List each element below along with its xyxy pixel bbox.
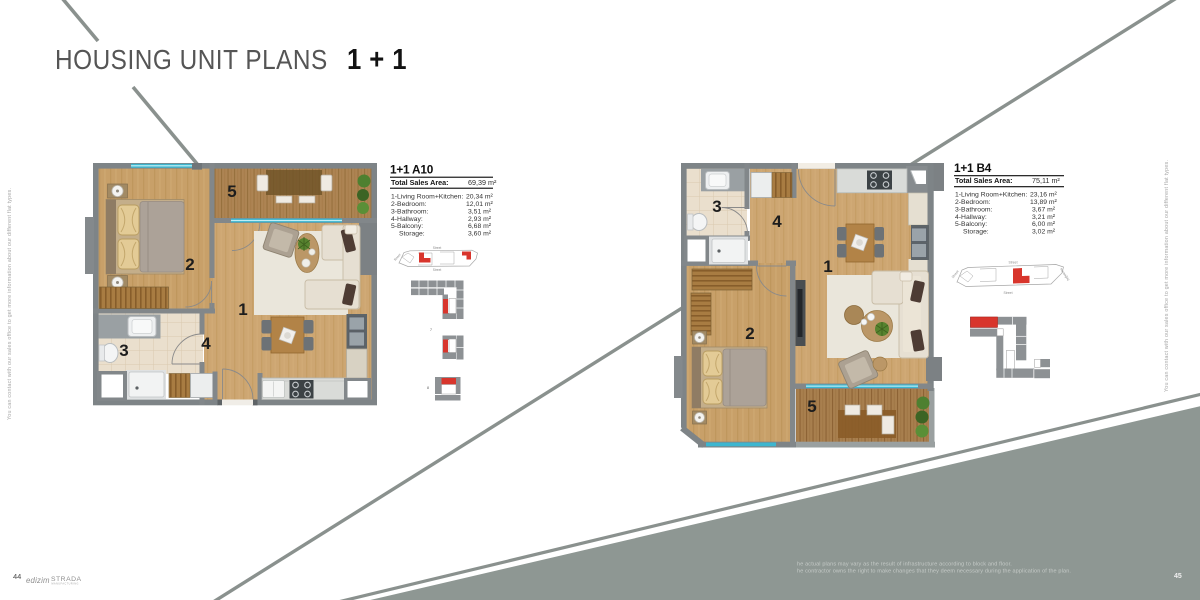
svg-text:23,16 m²: 23,16 m² <box>1030 192 1058 199</box>
svg-text:5: 5 <box>807 397 816 416</box>
svg-text:Street: Street <box>433 246 442 250</box>
svg-text:1+1 B4: 1+1 B4 <box>954 161 992 175</box>
svg-text:Storage:: Storage: <box>963 229 989 236</box>
svg-text:45: 45 <box>1174 573 1182 580</box>
svg-text:Storage:: Storage: <box>399 231 425 238</box>
svg-text:Total Sales Area:: Total Sales Area: <box>391 178 449 187</box>
svg-text:1: 1 <box>823 257 832 276</box>
svg-text:3,60 m²: 3,60 m² <box>468 231 492 238</box>
svg-text:3,21 m²: 3,21 m² <box>1032 214 1056 221</box>
svg-text:You can contact with our sales: You can contact with our sales office to… <box>7 188 13 420</box>
svg-text:1-Living Room+Kitchen:: 1-Living Room+Kitchen: <box>391 194 463 201</box>
svg-text:4-Hallway:: 4-Hallway: <box>955 214 987 221</box>
svg-text:1+1 A10: 1+1 A10 <box>390 163 434 177</box>
svg-text:3-Bathroom:: 3-Bathroom: <box>391 208 429 215</box>
svg-text:2: 2 <box>745 324 754 343</box>
svg-text:he actual plans may vary as th: he actual plans may vary as the result o… <box>797 562 1012 568</box>
svg-text:2-Bedroom:: 2-Bedroom: <box>391 201 427 208</box>
svg-text:3-Bathroom:: 3-Bathroom: <box>955 206 993 213</box>
svg-text:69,39 m²: 69,39 m² <box>468 178 497 187</box>
svg-text:3: 3 <box>119 341 128 360</box>
svg-text:2: 2 <box>185 255 194 274</box>
svg-text:20,34 m²: 20,34 m² <box>466 194 494 201</box>
svg-text:5-Balcony:: 5-Balcony: <box>391 223 423 230</box>
svg-text:4-Hallway:: 4-Hallway: <box>391 216 423 223</box>
svg-text:You can contact with our sales: You can contact with our sales office to… <box>1164 160 1170 392</box>
svg-text:Street: Street <box>433 268 442 272</box>
svg-text:1-Living Room+Kitchen:: 1-Living Room+Kitchen: <box>955 192 1027 199</box>
svg-text:12,01 m²: 12,01 m² <box>466 201 494 208</box>
svg-text:13,89 m²: 13,89 m² <box>1030 199 1058 206</box>
svg-text:Total Sales Area:: Total Sales Area: <box>955 176 1013 185</box>
svg-text:edizim: edizim <box>26 576 50 585</box>
svg-text:3,02 m²: 3,02 m² <box>1032 229 1056 236</box>
svg-text:4: 4 <box>772 212 782 231</box>
svg-text:5: 5 <box>227 182 236 201</box>
svg-text:2,93 m²: 2,93 m² <box>468 216 492 223</box>
svg-text:6,68 m²: 6,68 m² <box>468 223 492 230</box>
svg-text:HOUSING UNIT PLANS: HOUSING UNIT PLANS <box>55 43 328 75</box>
svg-text:3,51 m²: 3,51 m² <box>468 208 492 215</box>
svg-text:44: 44 <box>13 572 21 581</box>
svg-text:Street: Street <box>1008 261 1017 265</box>
svg-text:5-Balcony:: 5-Balcony: <box>955 221 987 228</box>
svg-text:2-Bedroom:: 2-Bedroom: <box>955 199 991 206</box>
svg-text:4: 4 <box>201 334 211 353</box>
svg-text:Street: Street <box>1003 291 1012 295</box>
svg-text:1: 1 <box>238 300 247 319</box>
svg-text:3: 3 <box>712 197 721 216</box>
svg-text:75,11 m²: 75,11 m² <box>1032 176 1060 185</box>
svg-text:6,00 m²: 6,00 m² <box>1032 221 1056 228</box>
svg-text:MANUFACTURING: MANUFACTURING <box>52 583 79 586</box>
svg-text:1 + 1: 1 + 1 <box>347 43 407 76</box>
svg-text:3,67 m²: 3,67 m² <box>1032 206 1056 213</box>
svg-text:he contractor owns the right t: he contractor owns the right to make cha… <box>797 569 1071 575</box>
